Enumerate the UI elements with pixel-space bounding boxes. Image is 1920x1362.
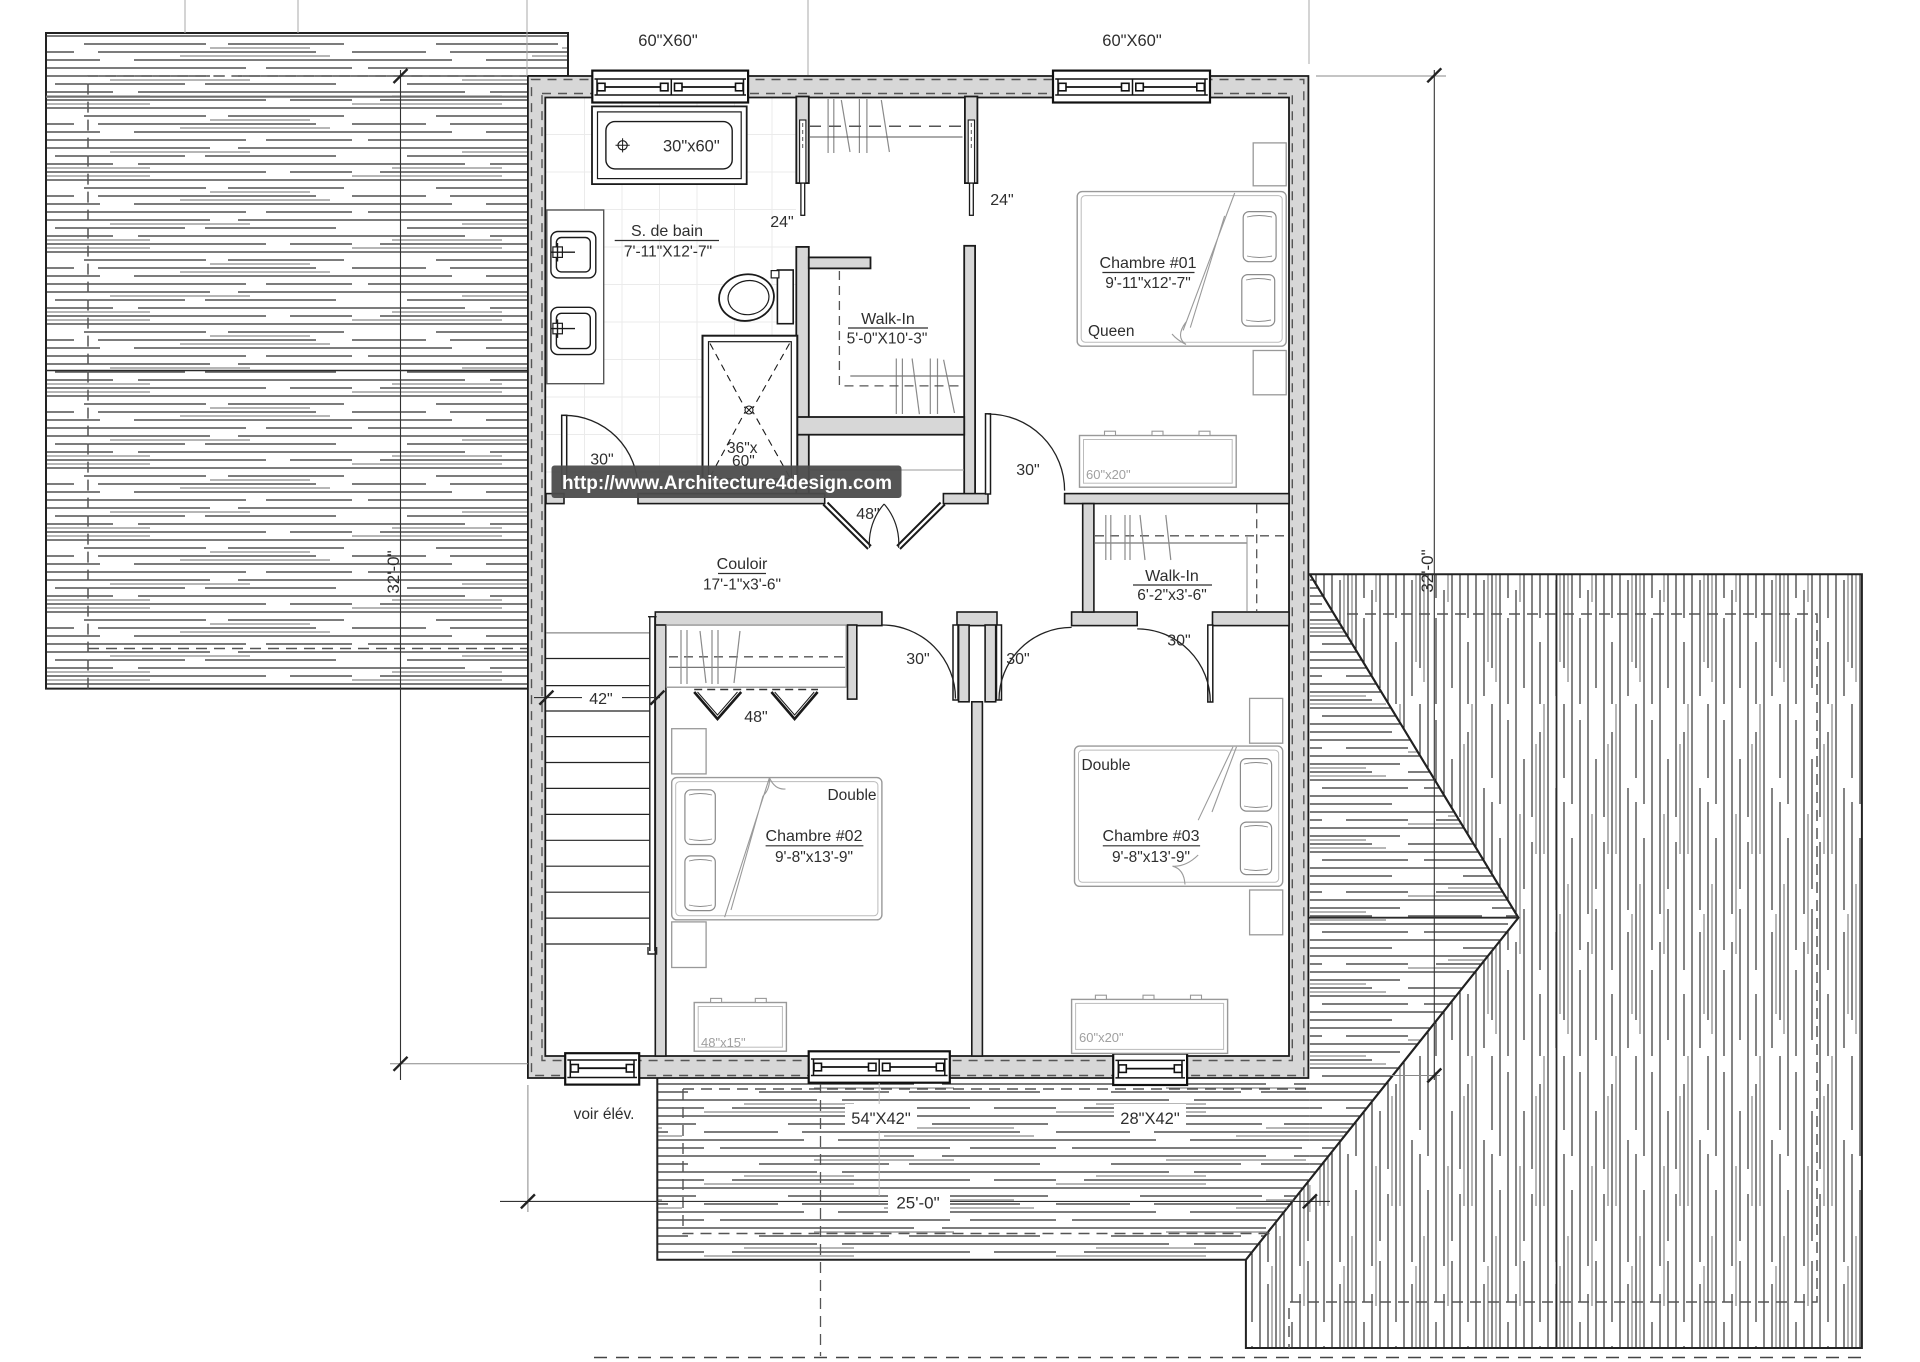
svg-text:48": 48"	[856, 506, 879, 523]
svg-text:30": 30"	[1016, 462, 1039, 479]
svg-text:S. de bain: S. de bain	[631, 223, 703, 240]
svg-text:Walk-In: Walk-In	[1145, 568, 1199, 585]
svg-text:Couloir: Couloir	[717, 556, 768, 573]
svg-text:7'-11"X12'-7": 7'-11"X12'-7"	[624, 244, 712, 261]
svg-text:Chambre #01: Chambre #01	[1100, 255, 1197, 272]
svg-text:32'-0": 32'-0"	[1418, 549, 1437, 592]
svg-text:24": 24"	[770, 214, 793, 231]
svg-text:voir élév.: voir élév.	[574, 1106, 635, 1123]
svg-text:9'-11"x12'-7": 9'-11"x12'-7"	[1105, 275, 1191, 292]
svg-text:30": 30"	[1167, 633, 1190, 650]
svg-text:9'-8"x13'-9": 9'-8"x13'-9"	[775, 849, 853, 866]
svg-text:28"X42": 28"X42"	[1120, 1110, 1180, 1128]
svg-text:48": 48"	[744, 709, 767, 726]
svg-text:42": 42"	[589, 691, 612, 708]
svg-text:48"x15": 48"x15"	[701, 1035, 746, 1050]
svg-text:http://www.Architecture4design: http://www.Architecture4design.com	[562, 472, 892, 494]
svg-text:32'-0": 32'-0"	[384, 550, 403, 593]
svg-text:60"x20": 60"x20"	[1086, 467, 1131, 482]
svg-text:30"x60": 30"x60"	[663, 138, 720, 156]
svg-text:6'-2"x3'-6": 6'-2"x3'-6"	[1137, 587, 1206, 604]
svg-text:60"x20": 60"x20"	[1079, 1030, 1124, 1045]
svg-text:5'-0"X10'-3": 5'-0"X10'-3"	[847, 331, 928, 348]
svg-text:Double: Double	[1081, 757, 1130, 774]
svg-text:30": 30"	[1006, 651, 1029, 668]
svg-text:9'-8"x13'-9": 9'-8"x13'-9"	[1112, 849, 1190, 866]
svg-text:30": 30"	[906, 651, 929, 668]
svg-text:Walk-In: Walk-In	[861, 311, 915, 328]
svg-text:60"X60": 60"X60"	[638, 32, 698, 50]
svg-text:Chambre #03: Chambre #03	[1103, 828, 1200, 845]
svg-text:54"X42": 54"X42"	[851, 1110, 911, 1128]
svg-text:25'-0": 25'-0"	[896, 1194, 939, 1213]
svg-text:Double: Double	[827, 787, 876, 804]
svg-text:17'-1"x3'-6": 17'-1"x3'-6"	[703, 577, 781, 594]
svg-text:Queen: Queen	[1088, 323, 1135, 340]
svg-text:24": 24"	[990, 192, 1013, 209]
svg-text:Chambre #02: Chambre #02	[766, 828, 863, 845]
svg-text:60"X60": 60"X60"	[1102, 32, 1162, 50]
